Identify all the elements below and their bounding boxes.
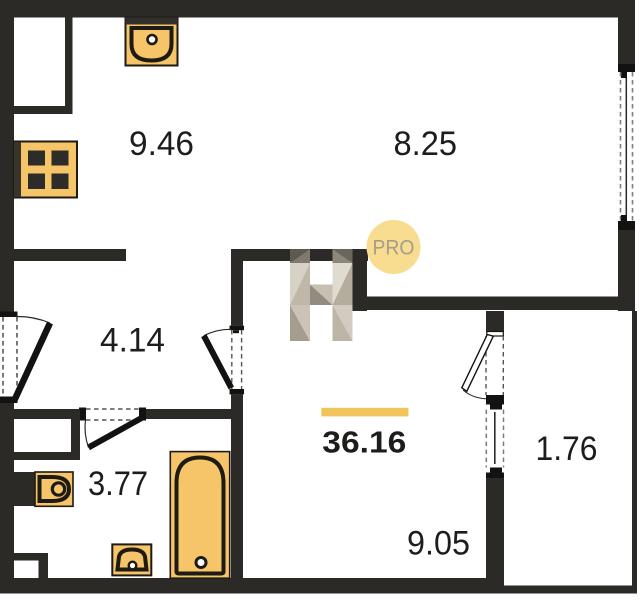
- svg-text:9.46: 9.46: [129, 125, 194, 163]
- svg-text:36.16: 36.16: [322, 425, 406, 460]
- svg-text:PRO: PRO: [373, 237, 415, 260]
- svg-text:9.05: 9.05: [407, 525, 470, 563]
- svg-text:1.76: 1.76: [536, 430, 598, 468]
- svg-text:4.14: 4.14: [100, 322, 165, 360]
- svg-text:8.25: 8.25: [394, 125, 458, 163]
- svg-text:3.77: 3.77: [88, 465, 148, 503]
